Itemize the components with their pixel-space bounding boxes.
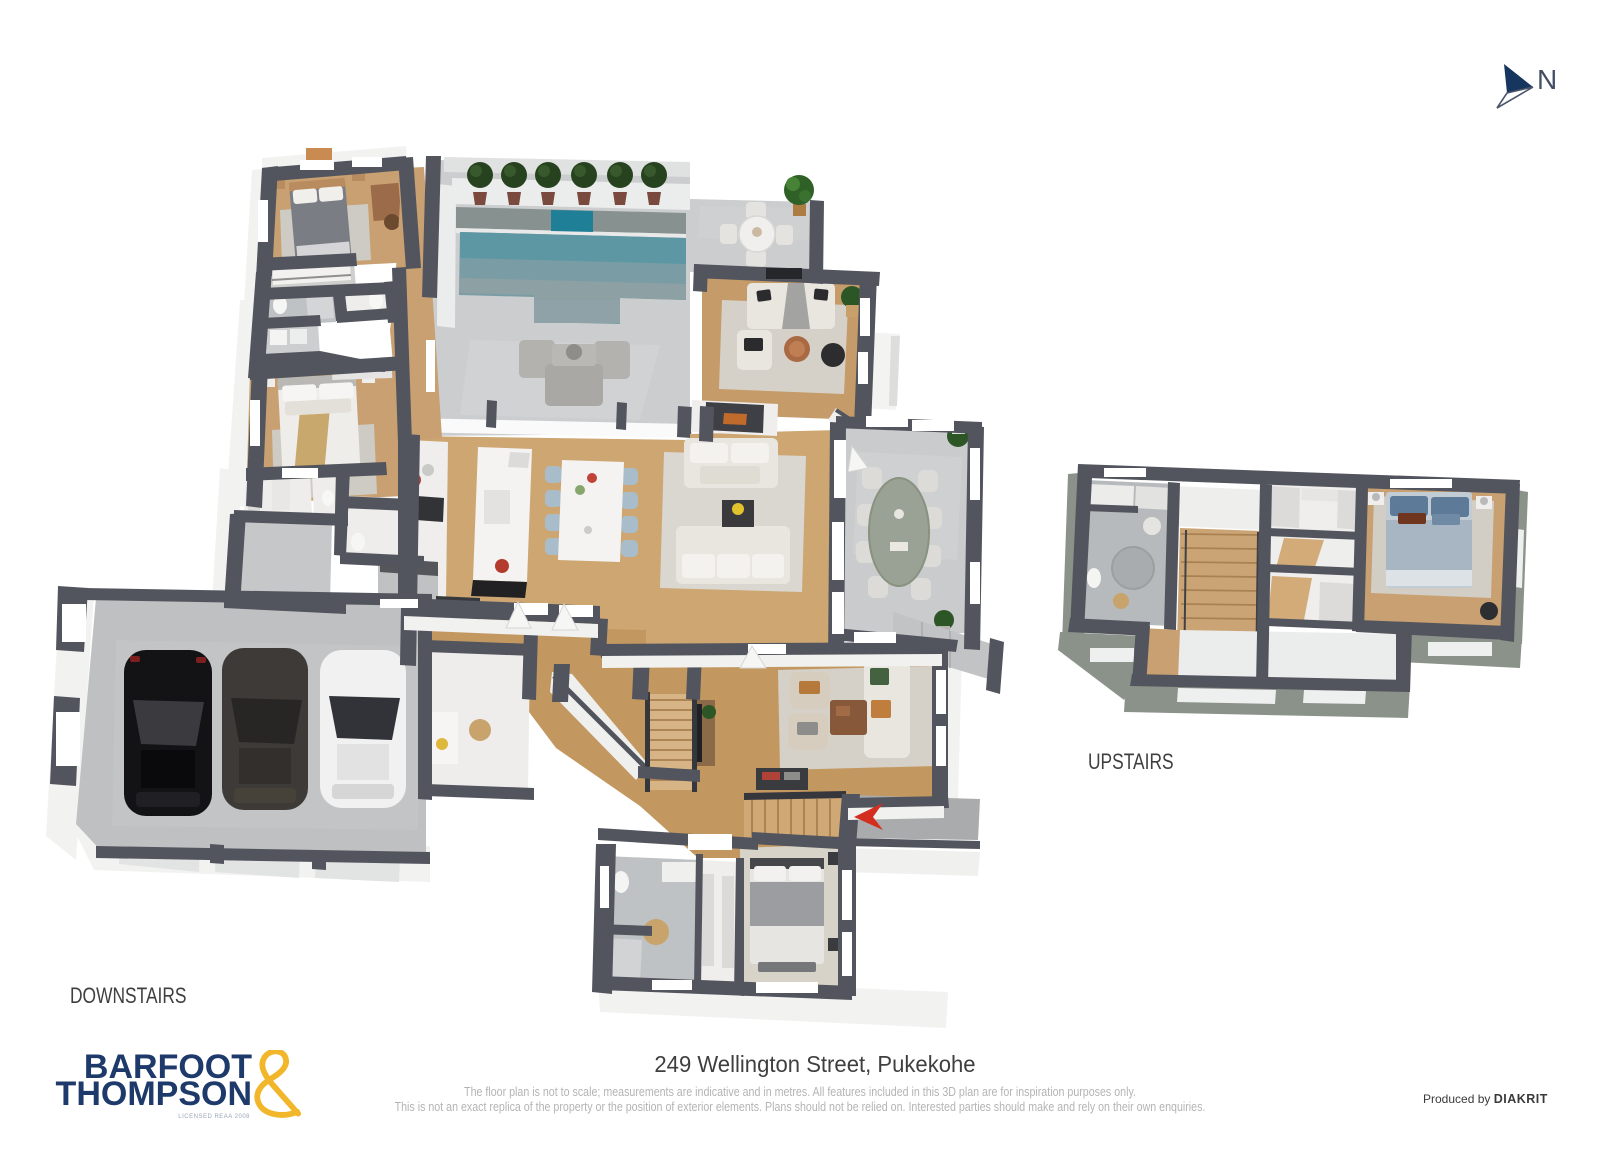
svg-text:N: N — [1537, 64, 1557, 95]
